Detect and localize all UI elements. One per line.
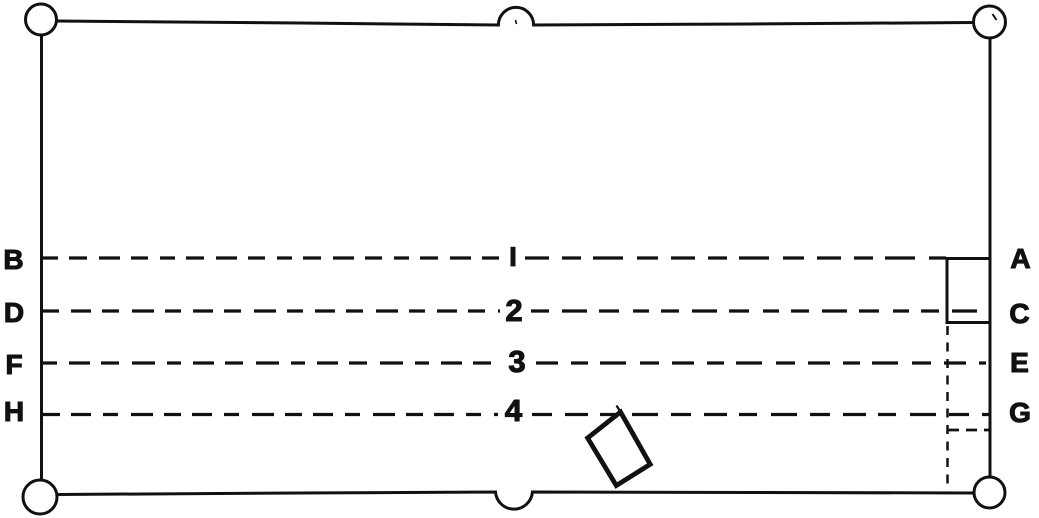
svg-text:3: 3 <box>508 344 525 379</box>
svg-text:E: E <box>1010 347 1029 378</box>
svg-text:D: D <box>4 297 24 328</box>
svg-text:A: A <box>1010 243 1030 274</box>
svg-text:4: 4 <box>505 393 523 428</box>
svg-text:F: F <box>5 349 22 380</box>
svg-text:G: G <box>1009 397 1031 428</box>
svg-text:2: 2 <box>505 293 522 328</box>
svg-text:C: C <box>1009 298 1029 329</box>
svg-text:H: H <box>4 396 24 427</box>
svg-text:B: B <box>3 244 23 275</box>
